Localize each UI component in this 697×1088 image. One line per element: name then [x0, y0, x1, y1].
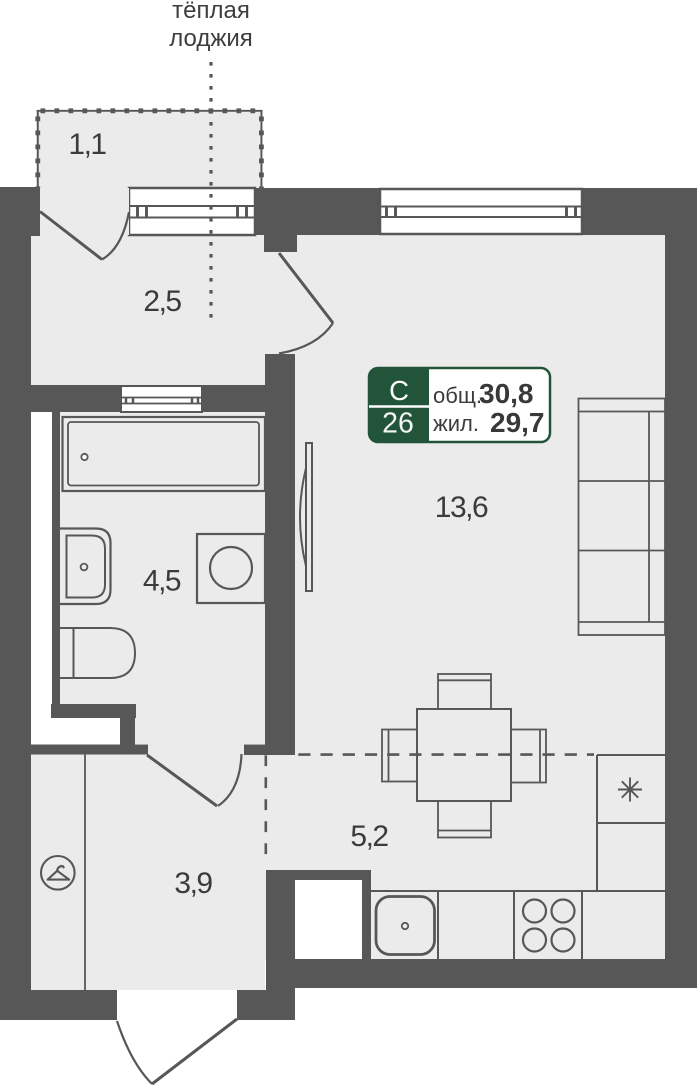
svg-text:1,1: 1,1 [68, 128, 106, 161]
svg-text:5,2: 5,2 [350, 820, 388, 853]
svg-text:жил.: жил. [433, 411, 479, 436]
svg-text:2,5: 2,5 [143, 285, 181, 318]
svg-text:29,7: 29,7 [490, 407, 545, 438]
svg-text:26: 26 [382, 408, 414, 440]
svg-text:общ.: общ. [433, 383, 482, 408]
svg-text:лоджия: лоджия [169, 25, 253, 52]
svg-text:3,9: 3,9 [174, 867, 212, 900]
svg-text:13,6: 13,6 [435, 491, 488, 524]
svg-text:30,8: 30,8 [479, 378, 534, 409]
svg-text:С: С [389, 375, 409, 406]
svg-text:4,5: 4,5 [143, 565, 181, 598]
svg-text:тёплая: тёплая [172, 0, 250, 24]
